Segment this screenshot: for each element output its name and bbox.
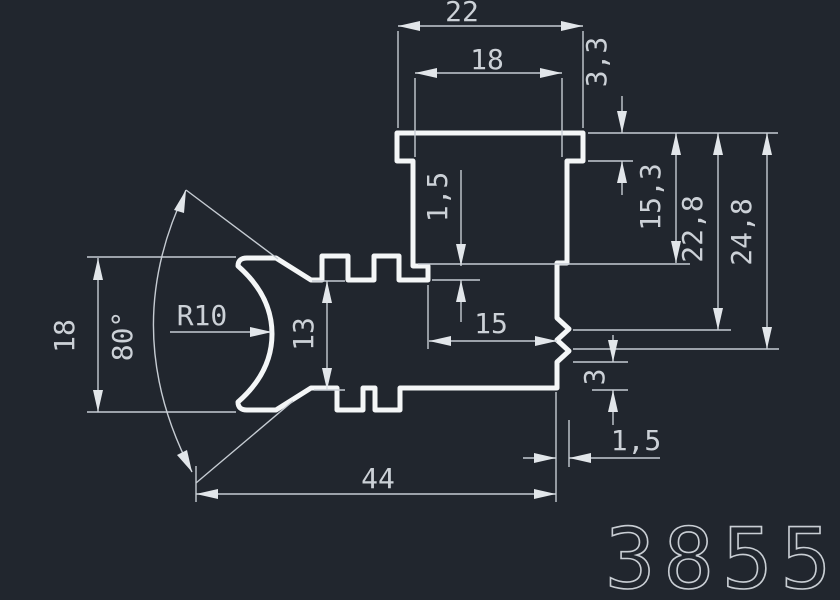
dim-crescent-height: 18	[48, 319, 81, 353]
dimension-arrowheads	[93, 21, 772, 499]
dimension-lines	[98, 26, 767, 494]
profile-path	[238, 133, 583, 410]
dim-overall-width: 44	[361, 462, 395, 495]
dim-arm-thickness: 13	[287, 317, 320, 351]
dim-opening-angle: 80°	[106, 311, 139, 362]
dim-depth-to-notch1: 22,8	[676, 195, 709, 262]
dim-top-stem-width: 18	[470, 43, 504, 76]
dim-top-flange-width: 22	[445, 0, 479, 28]
dim-crescent-radius: R10	[177, 299, 228, 332]
dim-depth-to-ledge: 15,3	[634, 163, 667, 230]
dim-channel-mouth-width: 15	[474, 307, 508, 340]
dimension-texts: 22 18 3,3 15,3 22,8 24,8 18 80° R10 13 1…	[48, 0, 758, 495]
dim-foot-offset: 1,5	[611, 424, 662, 457]
dim-foot-height: 3	[578, 369, 611, 386]
cad-canvas[interactable]: 22 18 3,3 15,3 22,8 24,8 18 80° R10 13 1…	[0, 0, 840, 600]
extension-lines	[87, 31, 779, 502]
dim-flange-thickness: 3,3	[580, 37, 613, 88]
dim-depth-to-notch2: 24,8	[725, 198, 758, 265]
profile-outline	[238, 133, 583, 410]
drawing-viewport: 22 18 3,3 15,3 22,8 24,8 18 80° R10 13 1…	[0, 0, 840, 600]
part-number-label: 3855	[605, 510, 839, 600]
dim-ledge-step: 1,5	[421, 172, 454, 223]
